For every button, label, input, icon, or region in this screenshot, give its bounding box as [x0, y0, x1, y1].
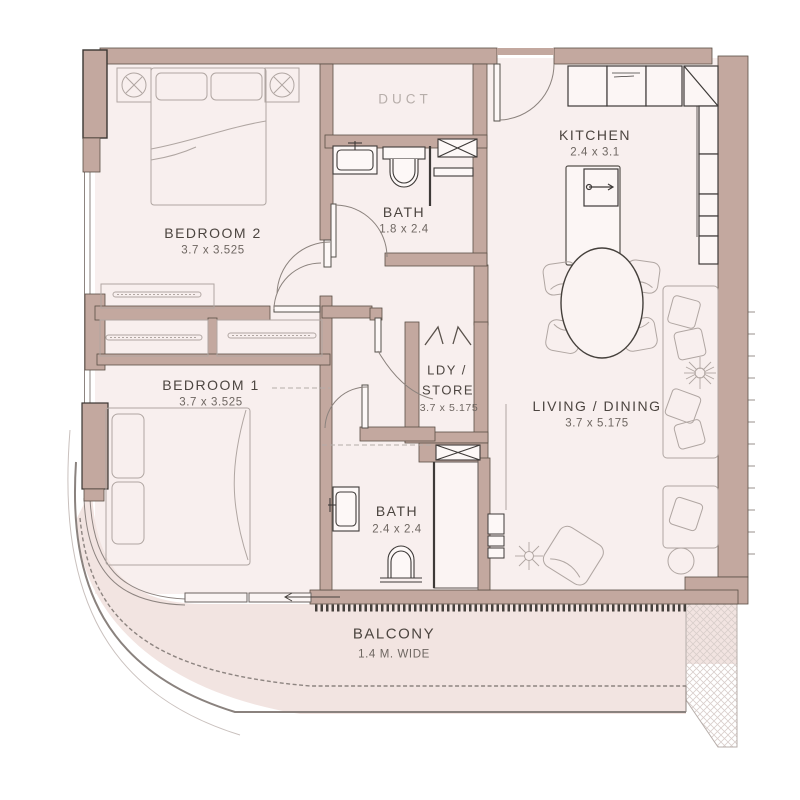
balcony-dims: 1.4 M. WIDE: [358, 649, 430, 661]
shaft-x-icon: [438, 139, 477, 157]
kitchen-sink: [607, 66, 646, 106]
bath1-label: BATH: [383, 205, 425, 219]
counter-unit: [646, 66, 682, 106]
kitchen-label: KITCHEN: [559, 128, 631, 142]
bath2-label: BATH: [376, 504, 418, 518]
kitchen-dims: 2.4 x 3.1: [570, 147, 620, 159]
bath1-dims: 1.8 x 2.4: [379, 224, 429, 236]
living-label: LIVING / DINING: [532, 399, 661, 413]
corner-unit: [684, 66, 718, 106]
shaft-x-icon: [436, 445, 480, 460]
bedroom2-dims: 3.7 x 3.525: [181, 245, 245, 257]
balcony-label: BALCONY: [353, 627, 435, 642]
floor-plan: BEDROOM 2 3.7 x 3.525 DUCT BATH 1.8 x 2.…: [0, 0, 800, 800]
shower: [434, 462, 478, 588]
bedroom2-label: BEDROOM 2: [164, 226, 262, 240]
dining-table: [561, 248, 643, 358]
bath2-dims: 2.4 x 2.4: [372, 524, 422, 536]
ldy-label-line2: STORE: [422, 384, 474, 397]
tall-units: [699, 106, 718, 264]
ldy-label-line1: LDY /: [427, 364, 467, 377]
sink: [328, 487, 359, 531]
living-dims: 3.7 x 5.175: [565, 418, 629, 430]
sink: [333, 141, 377, 174]
duct-label: DUCT: [378, 92, 432, 106]
bedroom1-dims: 3.7 x 3.525: [179, 397, 243, 409]
floor-plan-drawing: [0, 0, 800, 800]
bedroom1-label: BEDROOM 1: [162, 378, 260, 392]
counter-unit: [568, 66, 607, 106]
hatched-area: [686, 604, 737, 747]
shower-shelf: [434, 168, 473, 176]
ldy-dims: 3.7 x 5.175: [420, 403, 479, 414]
